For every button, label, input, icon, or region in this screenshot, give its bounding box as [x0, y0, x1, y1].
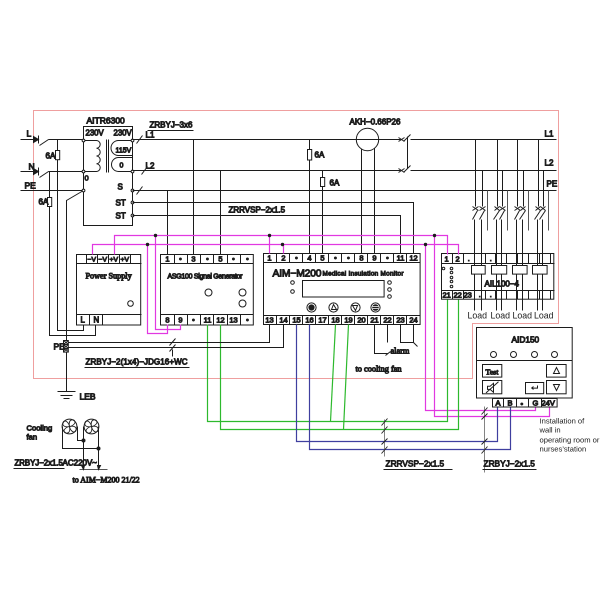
svg-text:1: 1 — [267, 254, 271, 263]
svg-text:Load: Load — [468, 311, 488, 321]
svg-text:6A: 6A — [39, 198, 49, 207]
svg-text:19: 19 — [344, 316, 352, 325]
svg-text:ZRBYJ−2(1x4)−JDG16+WC: ZRBYJ−2(1x4)−JDG16+WC — [86, 358, 188, 367]
svg-text:22: 22 — [454, 291, 462, 300]
svg-text:5: 5 — [320, 254, 324, 263]
svg-text:Test: Test — [486, 368, 500, 377]
svg-text:23: 23 — [464, 291, 472, 300]
svg-text:L1: L1 — [146, 131, 155, 140]
svg-text:1: 1 — [165, 255, 169, 264]
svg-text:AITR6300: AITR6300 — [87, 116, 126, 126]
svg-text:2: 2 — [456, 255, 460, 264]
svg-text:•: • — [521, 400, 524, 409]
svg-text:nurses’station: nurses’station — [540, 445, 587, 454]
svg-text:6A: 6A — [315, 151, 325, 160]
svg-text:AKH−0.66P26: AKH−0.66P26 — [350, 118, 401, 127]
svg-text:AID150: AID150 — [512, 335, 540, 345]
svg-text:AIL100−4: AIL100−4 — [485, 280, 520, 289]
svg-text:·: · — [490, 256, 493, 265]
svg-text:ST: ST — [116, 199, 126, 208]
svg-text:13: 13 — [265, 316, 273, 325]
svg-text:Medical Insulation Monitor: Medical Insulation Monitor — [323, 271, 405, 278]
svg-text:23: 23 — [396, 316, 404, 325]
svg-text:operating room or: operating room or — [540, 436, 600, 445]
svg-text:•: • — [232, 255, 235, 264]
svg-text:16: 16 — [305, 316, 313, 325]
svg-text:12: 12 — [409, 254, 417, 263]
svg-text:A: A — [496, 399, 501, 408]
svg-text:11: 11 — [204, 316, 212, 325]
svg-text:12: 12 — [216, 316, 224, 325]
svg-text:14: 14 — [279, 316, 287, 325]
svg-text:•: • — [334, 254, 337, 263]
svg-text:fan: fan — [27, 433, 38, 442]
svg-text:N: N — [94, 316, 100, 325]
svg-text:Cooling: Cooling — [27, 424, 53, 433]
svg-text:9: 9 — [178, 316, 182, 325]
svg-text:to AIM−M200 21/22: to AIM−M200 21/22 — [73, 476, 140, 485]
svg-text:Load: Load — [534, 311, 554, 321]
svg-text:17: 17 — [318, 316, 326, 325]
svg-text:wall in: wall in — [539, 426, 561, 435]
svg-text:PE: PE — [25, 181, 37, 191]
svg-text:24V: 24V — [542, 399, 555, 408]
svg-text:·: · — [490, 292, 493, 301]
svg-text:4: 4 — [307, 254, 311, 263]
svg-text:PE: PE — [54, 342, 66, 352]
svg-text:LEB: LEB — [80, 392, 96, 402]
svg-text:Load: Load — [491, 311, 511, 321]
svg-text:22: 22 — [383, 316, 391, 325]
svg-text:24: 24 — [409, 316, 417, 325]
svg-text:•: • — [179, 255, 182, 264]
svg-text:Load: Load — [513, 311, 533, 321]
svg-text:AIM−M200: AIM−M200 — [273, 269, 322, 280]
svg-text:15: 15 — [292, 316, 300, 325]
svg-text:•: • — [246, 255, 249, 264]
svg-text:•: • — [206, 255, 209, 264]
svg-text:6A: 6A — [46, 152, 56, 161]
svg-text:21: 21 — [443, 291, 451, 300]
svg-text:•: • — [295, 254, 298, 263]
svg-text:·: · — [479, 292, 482, 301]
svg-text:6A: 6A — [330, 179, 340, 188]
svg-text:AC220V~: AC220V~ — [63, 459, 98, 468]
svg-text:ZRRVSP−2x1.5: ZRRVSP−2x1.5 — [229, 206, 286, 215]
svg-text:ST: ST — [116, 212, 126, 221]
svg-text:•: • — [192, 316, 195, 325]
svg-text:11: 11 — [397, 254, 405, 263]
svg-text:9: 9 — [372, 254, 376, 263]
svg-text:230V: 230V — [86, 129, 105, 138]
svg-text:L2: L2 — [146, 162, 155, 171]
svg-text:8: 8 — [359, 254, 363, 263]
svg-text:·: · — [468, 256, 471, 265]
svg-text:ASG100 Signal Generator: ASG100 Signal Generator — [168, 274, 244, 281]
svg-text:−V: −V — [99, 257, 108, 264]
svg-text:230V: 230V — [114, 129, 133, 138]
svg-text:0: 0 — [120, 163, 124, 170]
svg-text:21: 21 — [370, 316, 378, 325]
svg-text:+V: +V — [121, 257, 130, 264]
svg-text:•: • — [246, 316, 249, 325]
svg-text:18: 18 — [331, 316, 339, 325]
svg-text:ZRBYJ−2x1.5: ZRBYJ−2x1.5 — [15, 459, 64, 468]
svg-text:0: 0 — [85, 174, 89, 183]
svg-text:L: L — [27, 129, 32, 139]
svg-text:13: 13 — [229, 316, 237, 325]
svg-text:•: • — [386, 254, 389, 263]
svg-text:ZRBYJ−2x1.5: ZRBYJ−2x1.5 — [484, 459, 536, 469]
svg-text:ZRBYJ−3x6: ZRBYJ−3x6 — [150, 121, 193, 130]
svg-text:−V: −V — [88, 257, 97, 264]
svg-text:1: 1 — [445, 255, 449, 264]
svg-text:•: • — [347, 254, 350, 263]
svg-text:3: 3 — [191, 255, 195, 264]
svg-text:5: 5 — [218, 255, 222, 264]
svg-text:8: 8 — [165, 316, 169, 325]
svg-text:B: B — [508, 399, 513, 408]
svg-text:L1: L1 — [545, 130, 554, 139]
svg-text:+V: +V — [110, 257, 119, 264]
svg-text:G: G — [533, 399, 539, 408]
svg-text:PE: PE — [547, 180, 558, 189]
svg-text:to cooling fan: to cooling fan — [356, 365, 403, 374]
svg-text:S: S — [118, 183, 123, 192]
svg-text:Installation of: Installation of — [540, 417, 586, 426]
svg-text:115V: 115V — [116, 148, 132, 155]
svg-text:ZRRVSP−2x1.5: ZRRVSP−2x1.5 — [386, 459, 445, 469]
svg-text:alarm: alarm — [391, 347, 410, 356]
svg-text:20: 20 — [357, 316, 365, 325]
svg-text:2: 2 — [281, 254, 285, 263]
svg-text:L2: L2 — [545, 159, 554, 168]
svg-text:L: L — [81, 316, 86, 325]
svg-text:Power Supply: Power Supply — [86, 272, 133, 281]
